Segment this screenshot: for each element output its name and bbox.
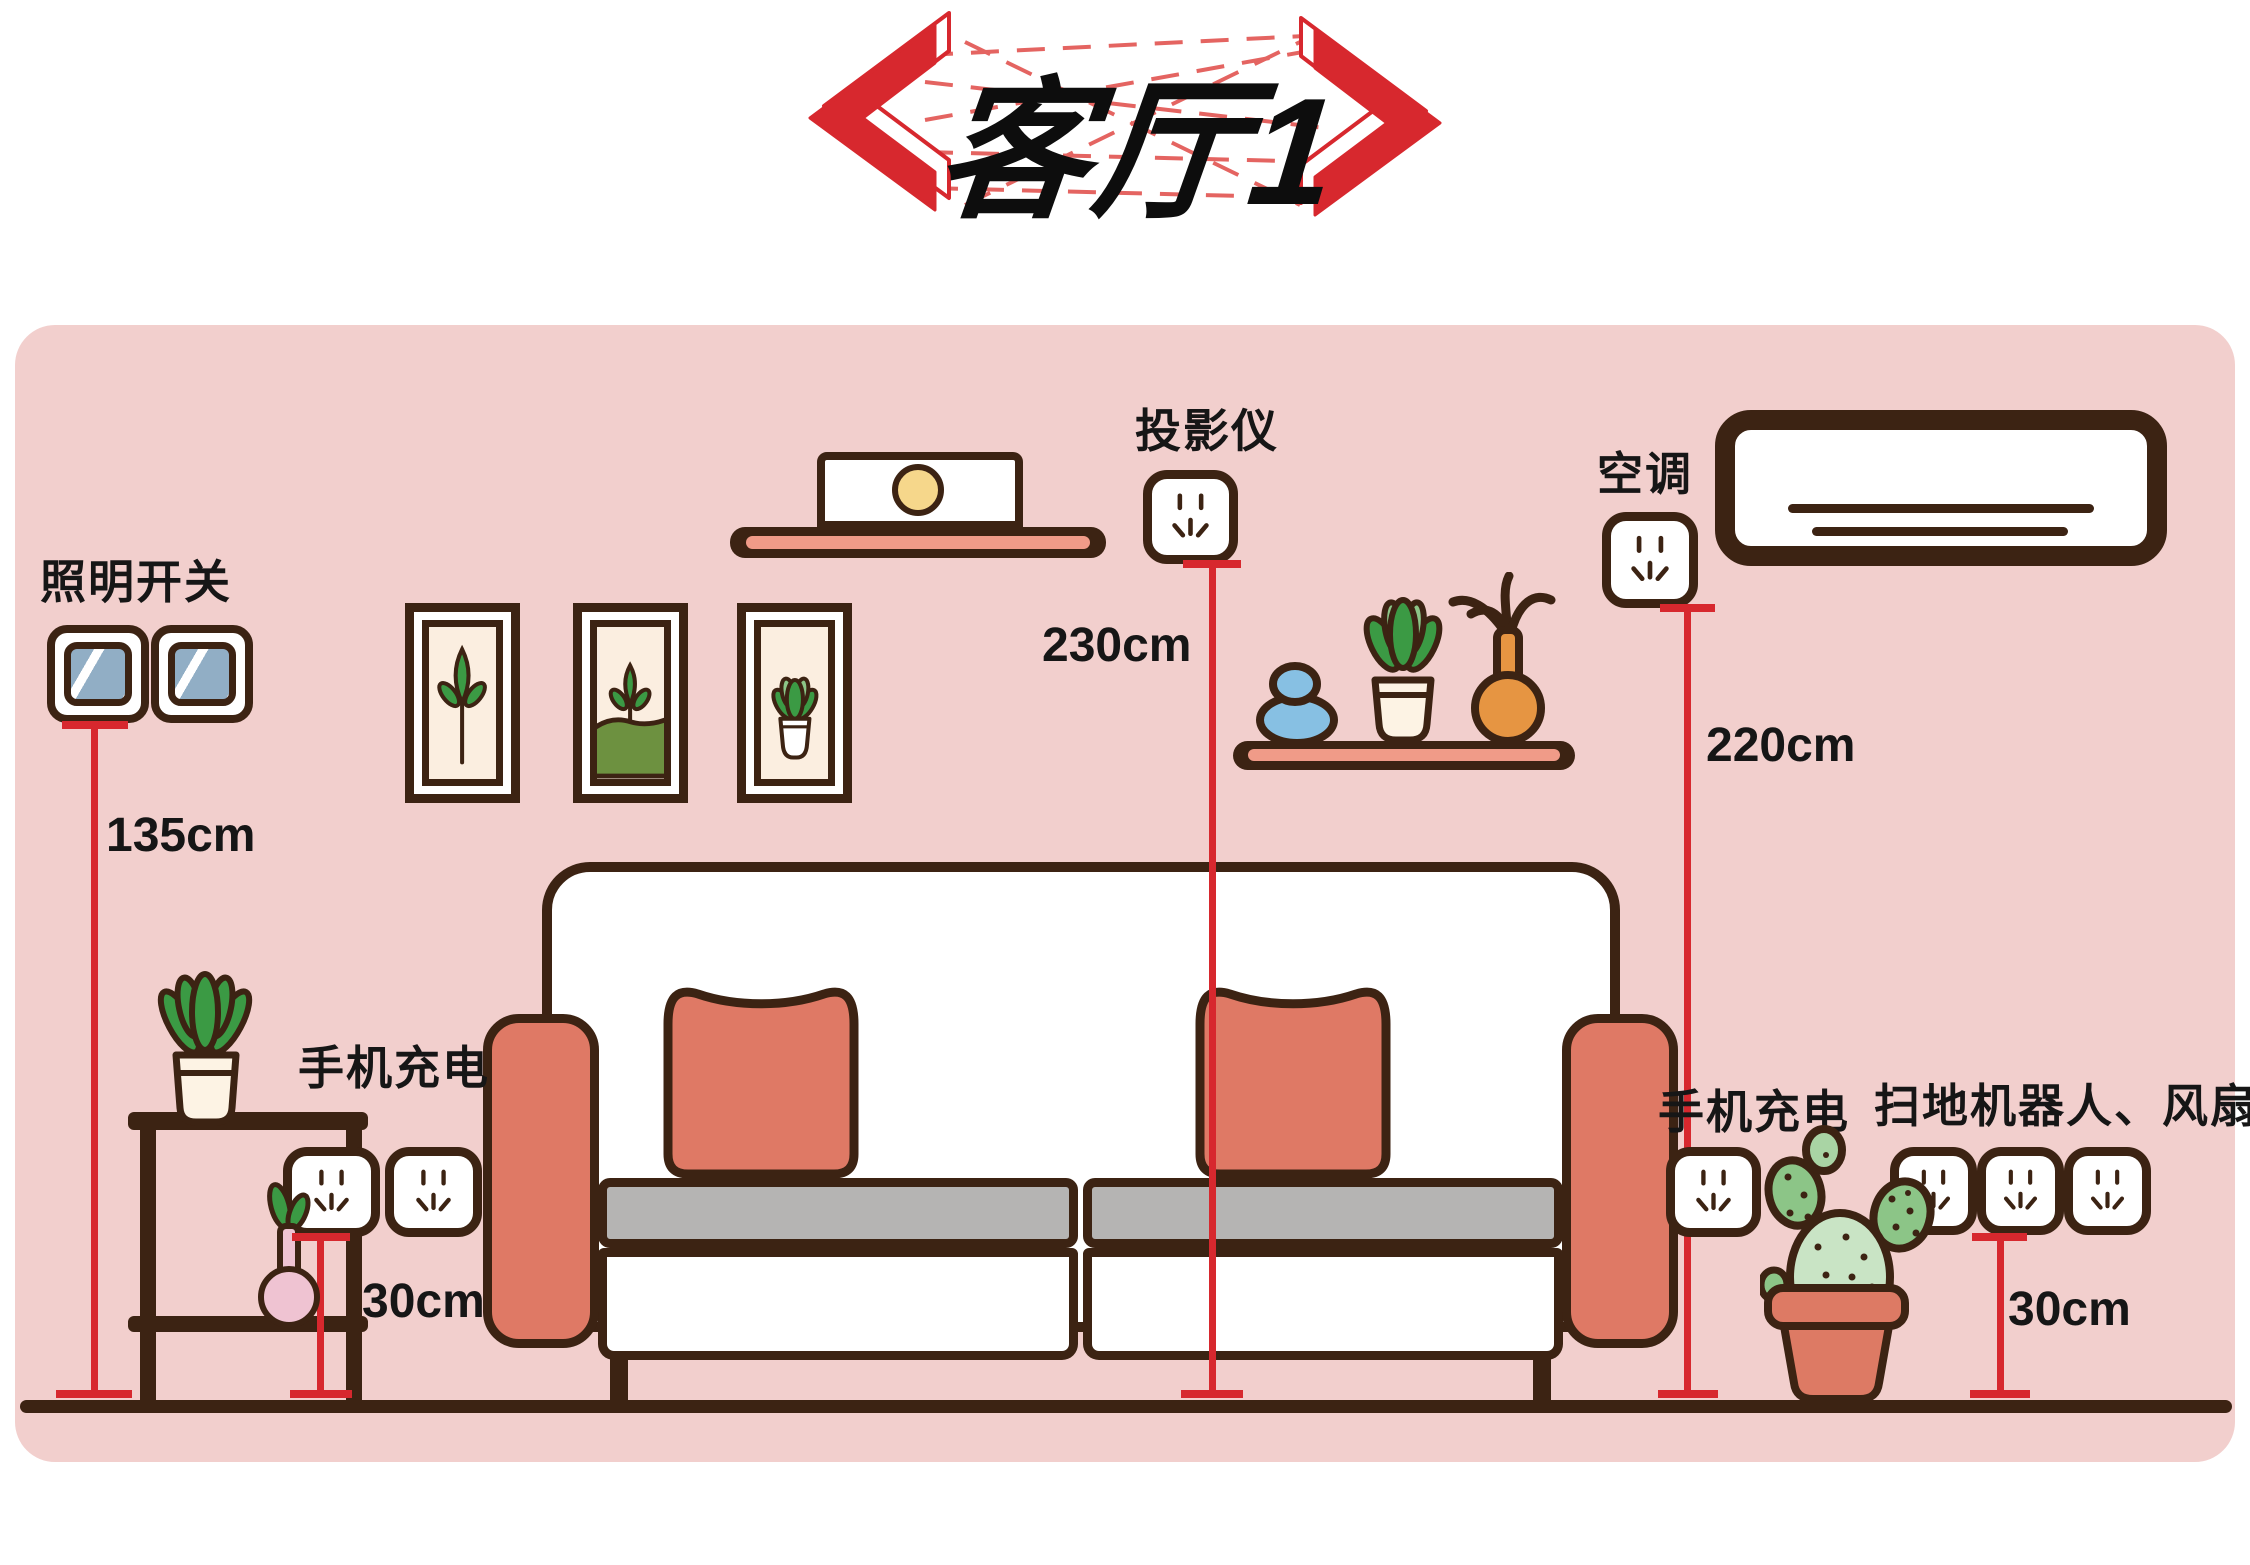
power-outlet: [2064, 1147, 2151, 1235]
air-conditioner-unit: [1715, 410, 2167, 566]
ac-vent-line-2: [1812, 527, 2068, 536]
switch-rocker-icon: [64, 642, 132, 706]
sofa-pillow-right: [1190, 972, 1396, 1184]
sofa-armrest-left: [483, 1014, 599, 1348]
phone-charge-left-height: 30cm: [362, 1278, 485, 1326]
measure-tick-top: [1183, 560, 1241, 568]
speaker-driver-icon: [892, 464, 944, 516]
sofa-pillow-left: [658, 972, 864, 1184]
ac-height: 220cm: [1706, 722, 1855, 770]
ac-vent-line-1: [1788, 504, 2094, 513]
power-outlet: [385, 1147, 482, 1237]
switch-rocker-icon: [168, 642, 236, 706]
pink-vase-illustration: [258, 1180, 322, 1332]
light-switch-height: 135cm: [106, 812, 255, 860]
sofa-leg-right: [1533, 1355, 1551, 1402]
socket-holes-icon: [1986, 1156, 2055, 1226]
picture-frame-3: [737, 603, 852, 803]
light-switch-label: 照明开关: [40, 556, 232, 609]
side-table-leg-left: [140, 1112, 156, 1402]
side-table-shelf: [128, 1316, 368, 1332]
measure-tick-bottom: [290, 1390, 352, 1398]
robot-fan-height: 30cm: [2008, 1286, 2131, 1334]
projector-label: 投影仪: [1135, 405, 1279, 458]
measure-tick-bottom: [1181, 1390, 1243, 1398]
sofa-armrest-right: [1562, 1014, 1678, 1348]
measure-tick-bottom: [1970, 1390, 2030, 1398]
power-outlet: [1602, 512, 1698, 608]
sofa-leg-left: [610, 1355, 628, 1402]
sofa-base-left: [598, 1248, 1078, 1360]
measure-line-220cm: [1684, 610, 1691, 1393]
light-switch-right: [151, 625, 253, 723]
frame-art-plant-hill: [590, 620, 671, 786]
sofa-seat-cushion-left: [598, 1178, 1078, 1248]
ac-label: 空调: [1597, 448, 1693, 501]
projector-height: 230cm: [1042, 622, 1191, 670]
stacked-stones-icon: [1260, 666, 1334, 743]
wall-shelf-top-stripe: [746, 536, 1090, 549]
measure-tick-top: [1972, 1233, 2027, 1241]
measure-tick-bottom: [1658, 1390, 1718, 1398]
sofa-seat-cushion-right: [1083, 1178, 1563, 1248]
measure-line-230cm: [1209, 566, 1216, 1393]
power-outlet: [1143, 470, 1238, 564]
measure-tick-top: [62, 721, 128, 729]
measure-tick-top: [292, 1233, 350, 1241]
measure-line-135cm: [91, 727, 98, 1398]
socket-holes-icon: [1675, 1156, 1752, 1228]
power-outlet: [1666, 1147, 1761, 1237]
frame-art-plant: [422, 620, 503, 786]
socket-holes-icon: [394, 1156, 473, 1228]
picture-frame-1: [405, 603, 520, 803]
sprout-vase-icon: [1453, 576, 1551, 741]
cactus-illustration: [1760, 1125, 1975, 1405]
socket-holes-icon: [1611, 521, 1689, 599]
phone-charge-left-label: 手机充电: [298, 1042, 490, 1095]
infographic-living-room: 客厅1 照明开关 135cm 手机充电 30cm: [0, 0, 2250, 1565]
page-title: 客厅1: [868, 28, 1411, 248]
shelf-decor-illustration: [1255, 572, 1575, 744]
light-switch-left: [47, 625, 149, 723]
power-outlet: [1977, 1147, 2064, 1235]
sofa-base-right: [1083, 1248, 1563, 1360]
potted-plant-icon: [1360, 600, 1446, 740]
measure-tick-top: [1660, 604, 1715, 612]
cactus-pot-body: [1784, 1326, 1889, 1399]
measure-line-30cm-right: [1997, 1240, 2004, 1392]
floor-line: [20, 1400, 2232, 1413]
table-plant-illustration: [150, 960, 260, 1128]
frame-art-potted-plant: [754, 620, 835, 786]
picture-frame-2: [573, 603, 688, 803]
socket-holes-icon: [1152, 479, 1229, 555]
measure-tick-bottom: [56, 1390, 132, 1398]
wall-shelf-right-stripe: [1248, 749, 1560, 761]
socket-holes-icon: [2073, 1156, 2142, 1226]
cactus-pot-rim: [1768, 1288, 1905, 1326]
